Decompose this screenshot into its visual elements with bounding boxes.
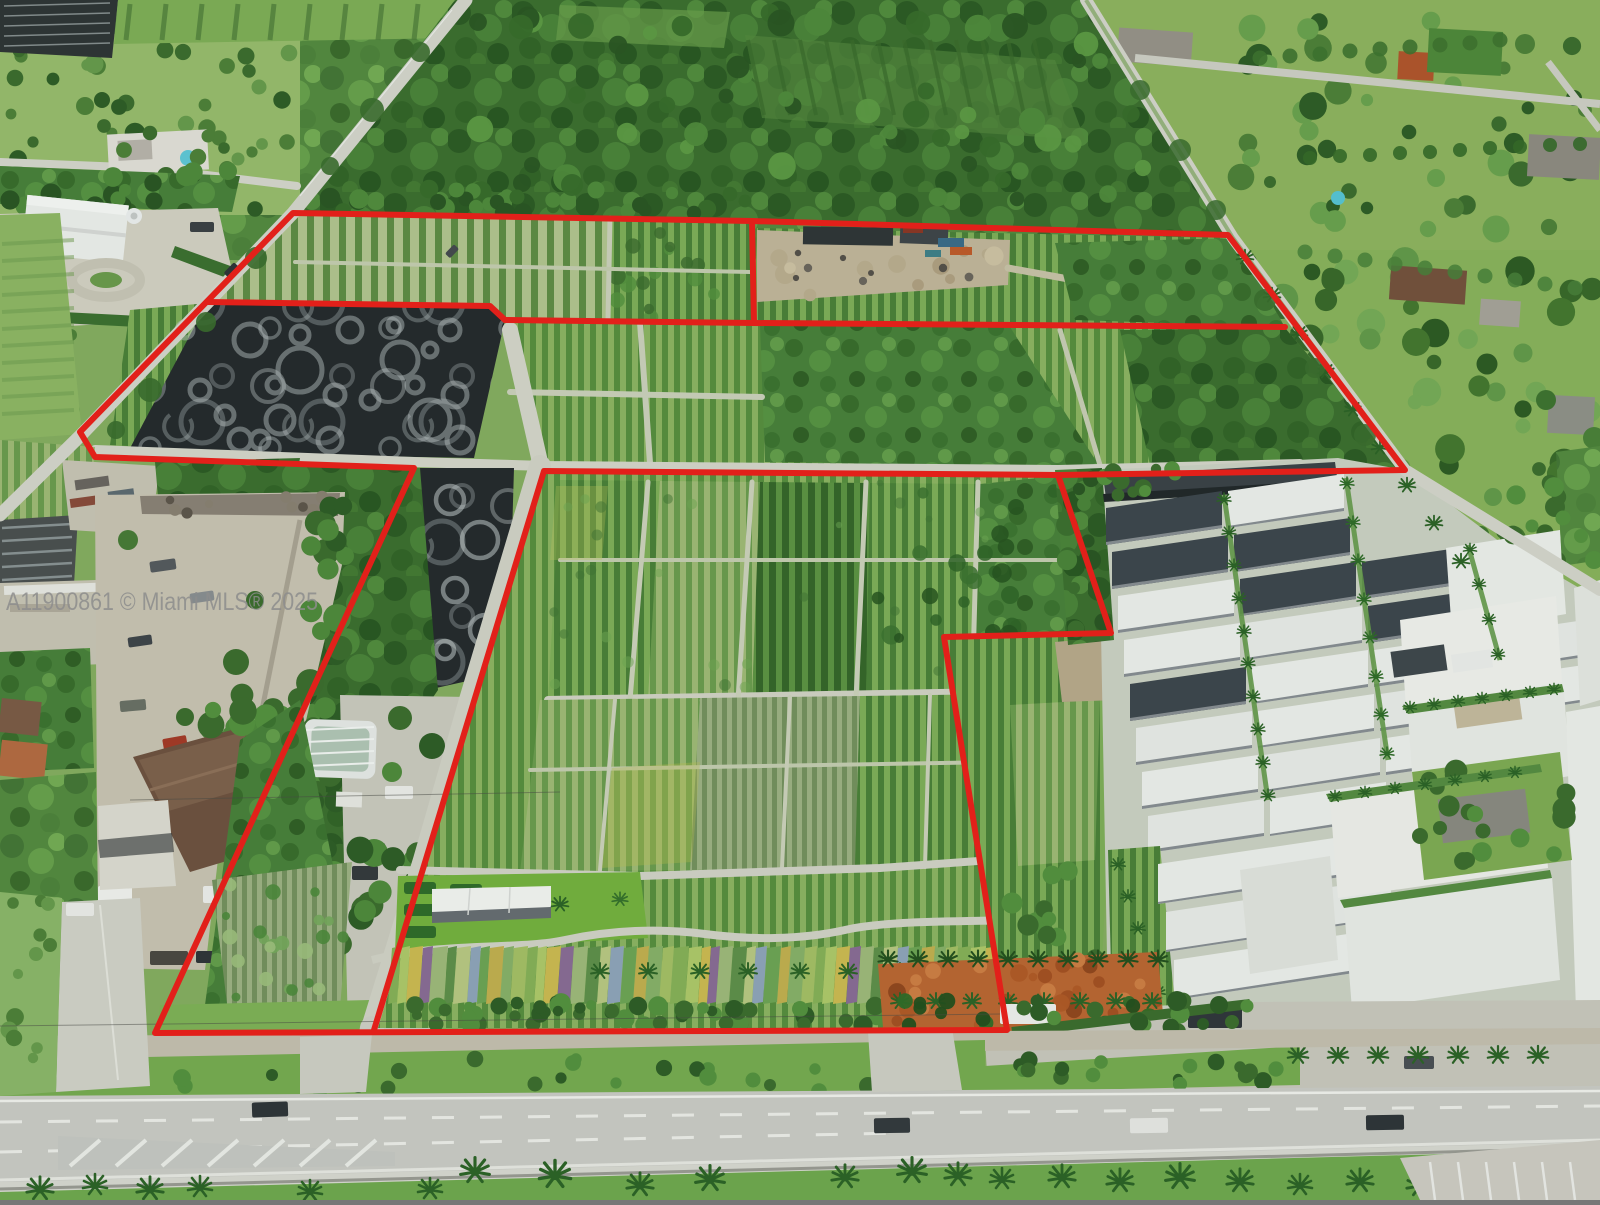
- svg-text:A11900861 © Miami MLS® 2025: A11900861 © Miami MLS® 2025: [6, 588, 318, 616]
